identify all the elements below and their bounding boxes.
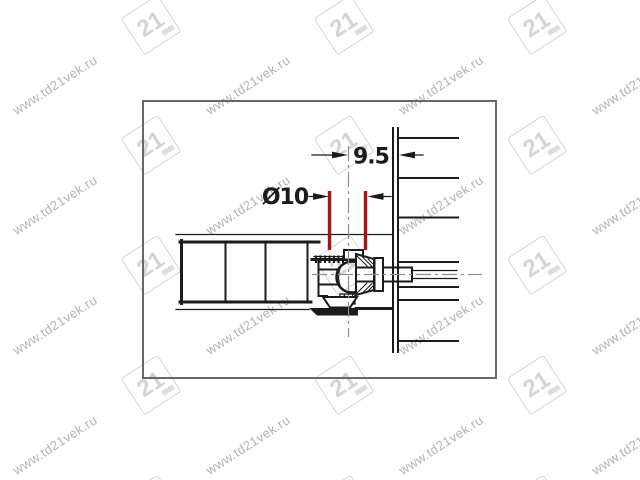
page: www.td21vek.ruwww.td21vek.ruwww.td21vek.…: [0, 0, 640, 480]
drill-mark-right: [364, 191, 367, 250]
housing-dovetail: [323, 297, 357, 308]
drill-mark-left: [328, 191, 331, 250]
dim-9-5-label: 9.5: [353, 145, 389, 170]
dim-9-5-arrow-left: [399, 152, 415, 159]
dim-d10-label: Ø10: [262, 185, 309, 210]
dim-d10-arrow-right: [313, 193, 329, 200]
knurl-teeth: [316, 257, 343, 263]
cam-fitting: [309, 250, 457, 316]
technical-drawing: 9.5 Ø10: [0, 0, 640, 480]
dim-d10-arrow-left: [368, 193, 384, 200]
dimension-edge-distance: 9.5: [312, 145, 423, 170]
drawing-frame: [143, 101, 496, 378]
housing-bottom-flange: [309, 308, 358, 316]
drill-hole-marks: [328, 191, 367, 250]
shelf-core-dividers: [226, 243, 308, 301]
side-panel-faces: [393, 128, 398, 352]
dim-9-5-arrow-right: [332, 152, 348, 159]
side-panel-grain-lines: [399, 138, 458, 341]
dimension-hole-diameter: Ø10: [262, 185, 391, 210]
side-panel: [393, 128, 458, 352]
